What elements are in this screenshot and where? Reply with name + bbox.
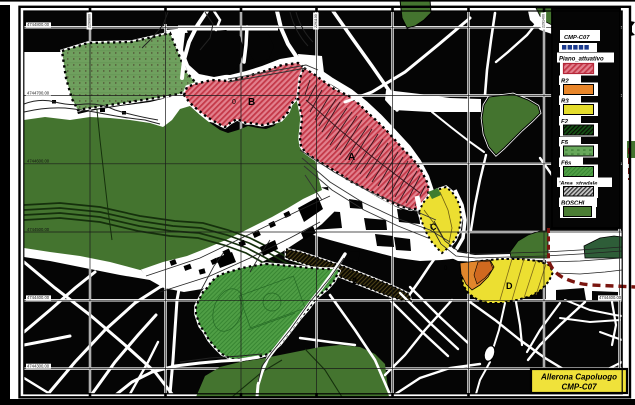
svg-text:A: A (348, 152, 355, 163)
svg-text:4744300.00: 4744300.00 (27, 364, 50, 369)
svg-text:2: 2 (352, 276, 357, 286)
svg-text:0: 0 (232, 99, 236, 106)
svg-text:2290800: 2290800 (88, 14, 92, 28)
svg-text:B: B (248, 97, 255, 108)
svg-text:4744400.00: 4744400.00 (599, 295, 622, 300)
svg-text:D: D (506, 281, 513, 291)
svg-text:4744400.00: 4744400.00 (27, 295, 50, 300)
svg-text:4744600.00: 4744600.00 (27, 159, 50, 164)
svg-text:4744700.00: 4744700.00 (27, 90, 50, 95)
svg-text:4744500.00: 4744500.00 (27, 227, 50, 232)
svg-text:Allerona Capoluogo: Allerona Capoluogo (540, 373, 617, 382)
svg-text:2291100: 2291100 (314, 14, 318, 28)
svg-text:CMP-C07: CMP-C07 (561, 383, 597, 392)
svg-text:CMP-C07: CMP-C07 (564, 35, 590, 41)
svg-text:2291400: 2291400 (542, 14, 546, 28)
svg-text:4744800.00: 4744800.00 (27, 22, 50, 27)
